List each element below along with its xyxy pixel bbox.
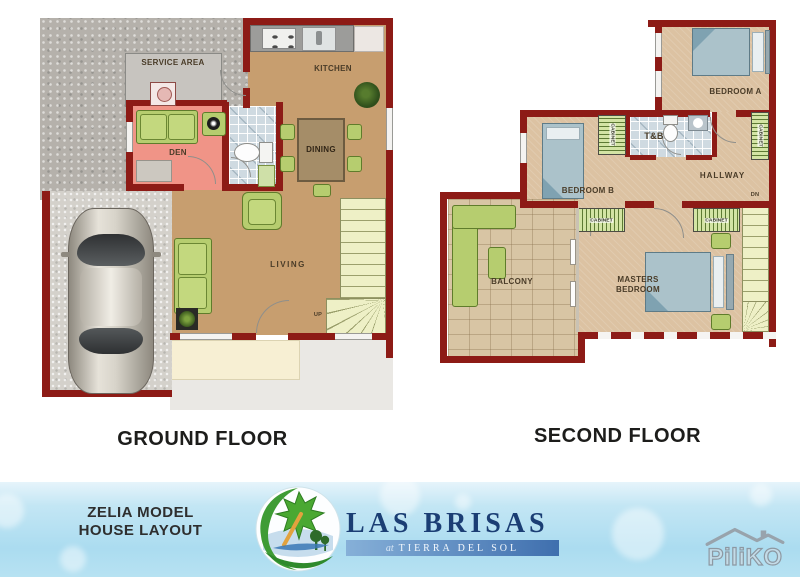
wall-kitchen-left-a	[243, 18, 250, 72]
wall-right	[769, 20, 776, 347]
den-table	[136, 160, 172, 182]
bedroom-b-label: BEDROOM B	[543, 186, 633, 196]
dining-chair	[347, 156, 362, 172]
nightstand	[711, 314, 731, 330]
wall-balcony-top	[440, 192, 525, 199]
floor-plan-page: DINING	[0, 0, 800, 577]
lavatory-icon	[688, 115, 708, 131]
car-rear-window	[79, 328, 143, 354]
wall-top	[648, 20, 776, 27]
service-area-label: SERVICE AREA	[138, 58, 208, 68]
plant-icon	[354, 82, 380, 108]
toilet-bowl	[234, 143, 260, 162]
pillow	[713, 256, 724, 308]
sofa-cushion	[140, 114, 167, 140]
footer-banner: ZELIA MODEL HOUSE LAYOUT LAS BRISAS at T…	[0, 482, 800, 577]
stairs-second-winder	[742, 301, 769, 332]
balcony-door-track	[576, 208, 579, 332]
floor-plan-ground: DINING	[30, 10, 395, 410]
toilet-icon	[234, 142, 272, 162]
bed-bedroom-a	[692, 28, 750, 76]
stairs-down-label: DN	[745, 192, 764, 199]
balcony-door-leaf	[570, 281, 576, 307]
den-label: DEN	[158, 148, 198, 158]
wall-balcony-bottom	[440, 356, 585, 363]
lamp-icon	[207, 117, 220, 130]
car-mirror	[61, 252, 70, 257]
stairs-up-label: UP	[310, 312, 326, 319]
wall-hall-seg	[625, 201, 654, 208]
wall-bottom-seg	[232, 333, 256, 340]
wall-bottom-seg	[288, 333, 335, 340]
pillow	[752, 32, 764, 72]
wall-bedroom-b-bottom	[520, 201, 578, 208]
watermark-text: PiliKO	[695, 544, 795, 572]
brand-tagline-prefix: at	[386, 543, 394, 554]
wall-connector	[578, 332, 585, 363]
dining-chair	[280, 124, 295, 140]
window-den	[126, 122, 133, 152]
bokeh-spot	[612, 508, 664, 560]
dining-chair	[313, 184, 331, 197]
bokeh-spot	[60, 546, 86, 572]
wall-right	[386, 18, 393, 358]
fridge	[354, 26, 384, 52]
car-windshield	[77, 234, 145, 266]
plant-leaves	[179, 311, 195, 327]
nightstand	[711, 233, 731, 249]
laundry-sink-icon	[150, 82, 176, 106]
wall-top	[243, 18, 393, 25]
stairs-second	[742, 203, 769, 303]
wall-tnb-bottom-seg	[686, 155, 712, 160]
headboard	[726, 254, 734, 310]
shower-icon	[258, 165, 275, 187]
dining-chair	[280, 156, 295, 172]
sofa-cushion	[178, 243, 207, 275]
window-bedroom-a	[655, 71, 662, 97]
car	[64, 208, 158, 394]
model-label-line1: ZELIA MODEL	[38, 504, 243, 522]
wall-bottom-seg	[372, 333, 393, 340]
stove-icon	[262, 28, 296, 49]
balcony-table	[488, 247, 506, 279]
hallway-label: HALLWAY	[675, 171, 770, 181]
window-stairs	[335, 333, 372, 340]
wall-den-bottom	[126, 184, 184, 191]
wall-masters-top	[682, 201, 776, 208]
brand-tagline: TIERRA DEL SOL	[399, 543, 520, 554]
wall-bottom-seg	[170, 333, 180, 340]
blanket-fold	[693, 29, 715, 51]
window-living	[180, 333, 232, 340]
cabinet: CABINET	[693, 208, 740, 232]
den-sofa	[136, 110, 198, 144]
kitchen-label: KITCHEN	[298, 64, 368, 74]
model-label: ZELIA MODEL HOUSE LAYOUT	[38, 504, 243, 540]
car-roof	[80, 268, 142, 326]
brand-tagline-bar: at TIERRA DEL SOL	[346, 540, 559, 556]
toilet-tank	[259, 142, 273, 163]
dining-chair	[347, 124, 362, 140]
window-bedroom-a	[655, 33, 662, 57]
ground-floor-title: GROUND FLOOR	[90, 428, 315, 451]
plant-icon	[176, 308, 198, 330]
stairs-ground	[340, 198, 386, 301]
model-label-line2: HOUSE LAYOUT	[38, 522, 243, 540]
wall-service-den	[126, 100, 227, 106]
dining-label: DINING	[306, 145, 336, 155]
window-dining	[386, 108, 393, 150]
second-floor-title: SECOND FLOOR	[505, 425, 730, 448]
watermark: PiliKO	[695, 524, 795, 572]
cabinet-label: CABINET	[705, 218, 729, 223]
cabinet: CABINET	[578, 208, 625, 232]
wall-balcony-left	[440, 192, 447, 363]
laundry-basin	[157, 87, 172, 102]
cabinet-label: CABINET	[757, 125, 763, 148]
cabinet: CABINET	[751, 112, 769, 160]
faucet-icon	[316, 31, 322, 45]
living-label: LIVING	[248, 260, 328, 270]
living-sofa	[174, 238, 212, 314]
cabinet: CABINET	[598, 115, 626, 155]
wall-masters-bottom-windowed	[578, 332, 776, 339]
balcony-bench	[452, 205, 516, 229]
window-bedroom-b	[520, 133, 527, 163]
tnb-label: T&B	[634, 131, 674, 142]
bokeh-spot	[750, 484, 772, 506]
living-armchair	[242, 192, 282, 230]
brand-name: LAS BRISAS	[346, 508, 576, 540]
cabinet-label: CABINET	[590, 218, 614, 223]
car-mirror	[152, 252, 161, 257]
cabinet-label: CABINET	[609, 124, 615, 147]
kitchen-sink-icon	[302, 27, 336, 51]
chair-cushion	[248, 199, 276, 225]
floor-plan-second: CABINET CABINET CABINET CABINET	[440, 15, 790, 410]
wall-bath-right	[276, 102, 283, 191]
wall-tnb-bottom-seg	[630, 155, 656, 160]
den-side-table	[202, 112, 226, 136]
sofa-cushion	[178, 277, 207, 309]
dining-table: DINING	[297, 118, 345, 182]
sofa-cushion	[168, 114, 195, 140]
headboard	[765, 30, 770, 74]
porch	[170, 340, 300, 380]
balcony-door-leaf	[570, 239, 576, 265]
balcony-label: BALCONY	[473, 277, 551, 287]
pillow	[546, 127, 580, 140]
stairs-ground-winder	[326, 298, 386, 335]
las-brisas-logo	[253, 484, 343, 574]
bedroom-a-label: BEDROOM A	[683, 87, 788, 97]
masters-bedroom-label: MASTERS BEDROOM	[596, 275, 680, 295]
lavatory-basin	[693, 118, 703, 128]
wall-garage-left	[42, 191, 50, 397]
bokeh-spot	[0, 494, 24, 528]
